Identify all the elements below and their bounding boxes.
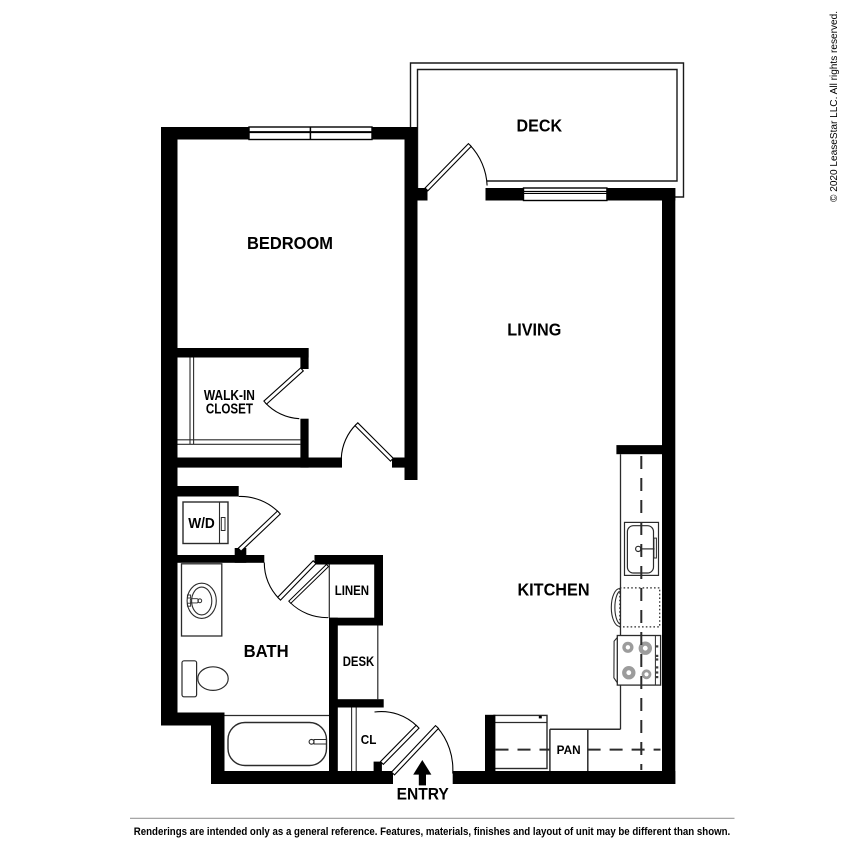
- svg-text:LIVING: LIVING: [507, 319, 561, 339]
- svg-text:PAN: PAN: [557, 745, 581, 757]
- svg-text:KITCHEN: KITCHEN: [517, 580, 589, 600]
- svg-text:DECK: DECK: [517, 116, 563, 136]
- svg-text:DESK: DESK: [343, 653, 375, 669]
- svg-text:LINEN: LINEN: [335, 583, 369, 598]
- svg-text:ENTRY: ENTRY: [397, 785, 450, 804]
- svg-text:© 2020 LeaseStar LLC. All righ: © 2020 LeaseStar LLC. All rights reserve…: [829, 11, 840, 202]
- svg-text:W/D: W/D: [188, 516, 215, 532]
- svg-text:CL: CL: [361, 732, 377, 747]
- svg-text:CLOSET: CLOSET: [206, 401, 253, 417]
- svg-text:BEDROOM: BEDROOM: [247, 233, 333, 253]
- svg-text:BATH: BATH: [244, 641, 289, 661]
- svg-text:Renderings are intended only a: Renderings are intended only as a genera…: [134, 826, 731, 838]
